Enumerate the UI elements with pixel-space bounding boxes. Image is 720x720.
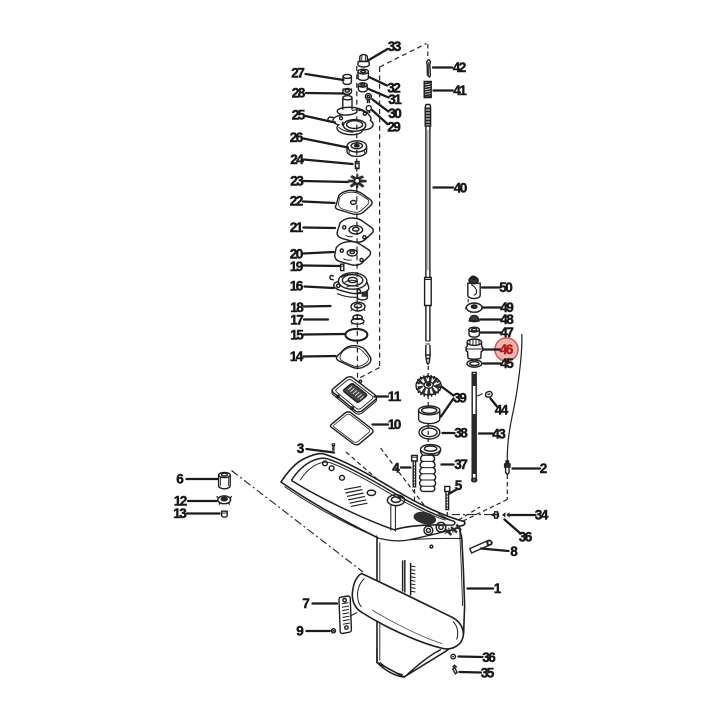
svg-text:47: 47 xyxy=(500,325,514,340)
svg-text:26: 26 xyxy=(290,130,304,145)
svg-text:29: 29 xyxy=(387,120,401,135)
svg-text:15: 15 xyxy=(290,328,304,343)
svg-text:11: 11 xyxy=(388,389,402,404)
svg-text:9: 9 xyxy=(296,624,304,639)
svg-text:34: 34 xyxy=(535,508,549,523)
svg-text:45: 45 xyxy=(500,356,514,371)
svg-text:31: 31 xyxy=(388,92,402,107)
svg-text:8: 8 xyxy=(510,544,518,559)
svg-text:28: 28 xyxy=(292,86,306,101)
svg-text:25: 25 xyxy=(292,108,306,123)
svg-text:36: 36 xyxy=(519,530,533,545)
svg-text:6: 6 xyxy=(176,472,184,487)
svg-text:40: 40 xyxy=(454,181,468,196)
svg-text:23: 23 xyxy=(290,174,304,189)
svg-text:27: 27 xyxy=(291,66,305,81)
svg-text:44: 44 xyxy=(495,403,509,418)
svg-text:16: 16 xyxy=(290,279,304,294)
svg-text:41: 41 xyxy=(453,83,467,98)
svg-text:17: 17 xyxy=(290,313,304,328)
svg-text:2: 2 xyxy=(540,461,548,476)
svg-text:21: 21 xyxy=(290,220,304,235)
svg-text:10: 10 xyxy=(388,417,402,432)
svg-text:1: 1 xyxy=(494,581,502,596)
svg-text:42: 42 xyxy=(453,60,467,75)
svg-text:5: 5 xyxy=(455,478,463,493)
svg-text:37: 37 xyxy=(454,457,468,472)
svg-text:38: 38 xyxy=(454,426,468,441)
svg-text:46: 46 xyxy=(500,342,514,357)
svg-text:43: 43 xyxy=(492,427,506,442)
svg-text:22: 22 xyxy=(290,194,304,209)
svg-text:13: 13 xyxy=(173,506,187,521)
svg-text:35: 35 xyxy=(481,666,495,681)
svg-text:39: 39 xyxy=(453,391,467,406)
svg-text:7: 7 xyxy=(302,596,310,611)
svg-text:19: 19 xyxy=(290,259,304,274)
svg-text:50: 50 xyxy=(499,280,513,295)
svg-text:3: 3 xyxy=(297,441,305,456)
svg-text:14: 14 xyxy=(290,349,304,364)
svg-text:33: 33 xyxy=(388,39,402,54)
svg-text:36: 36 xyxy=(482,650,496,665)
svg-text:24: 24 xyxy=(290,152,304,167)
